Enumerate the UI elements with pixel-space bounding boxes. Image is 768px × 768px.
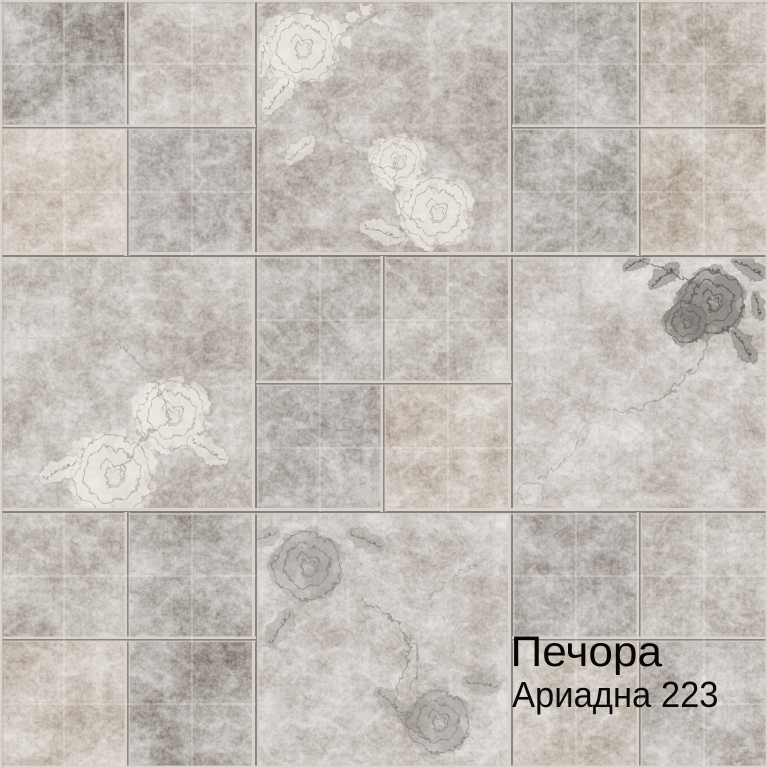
svg-text:Ариадна 223: Ариадна 223 xyxy=(512,674,719,715)
svg-text:Печора: Печора xyxy=(511,629,663,676)
